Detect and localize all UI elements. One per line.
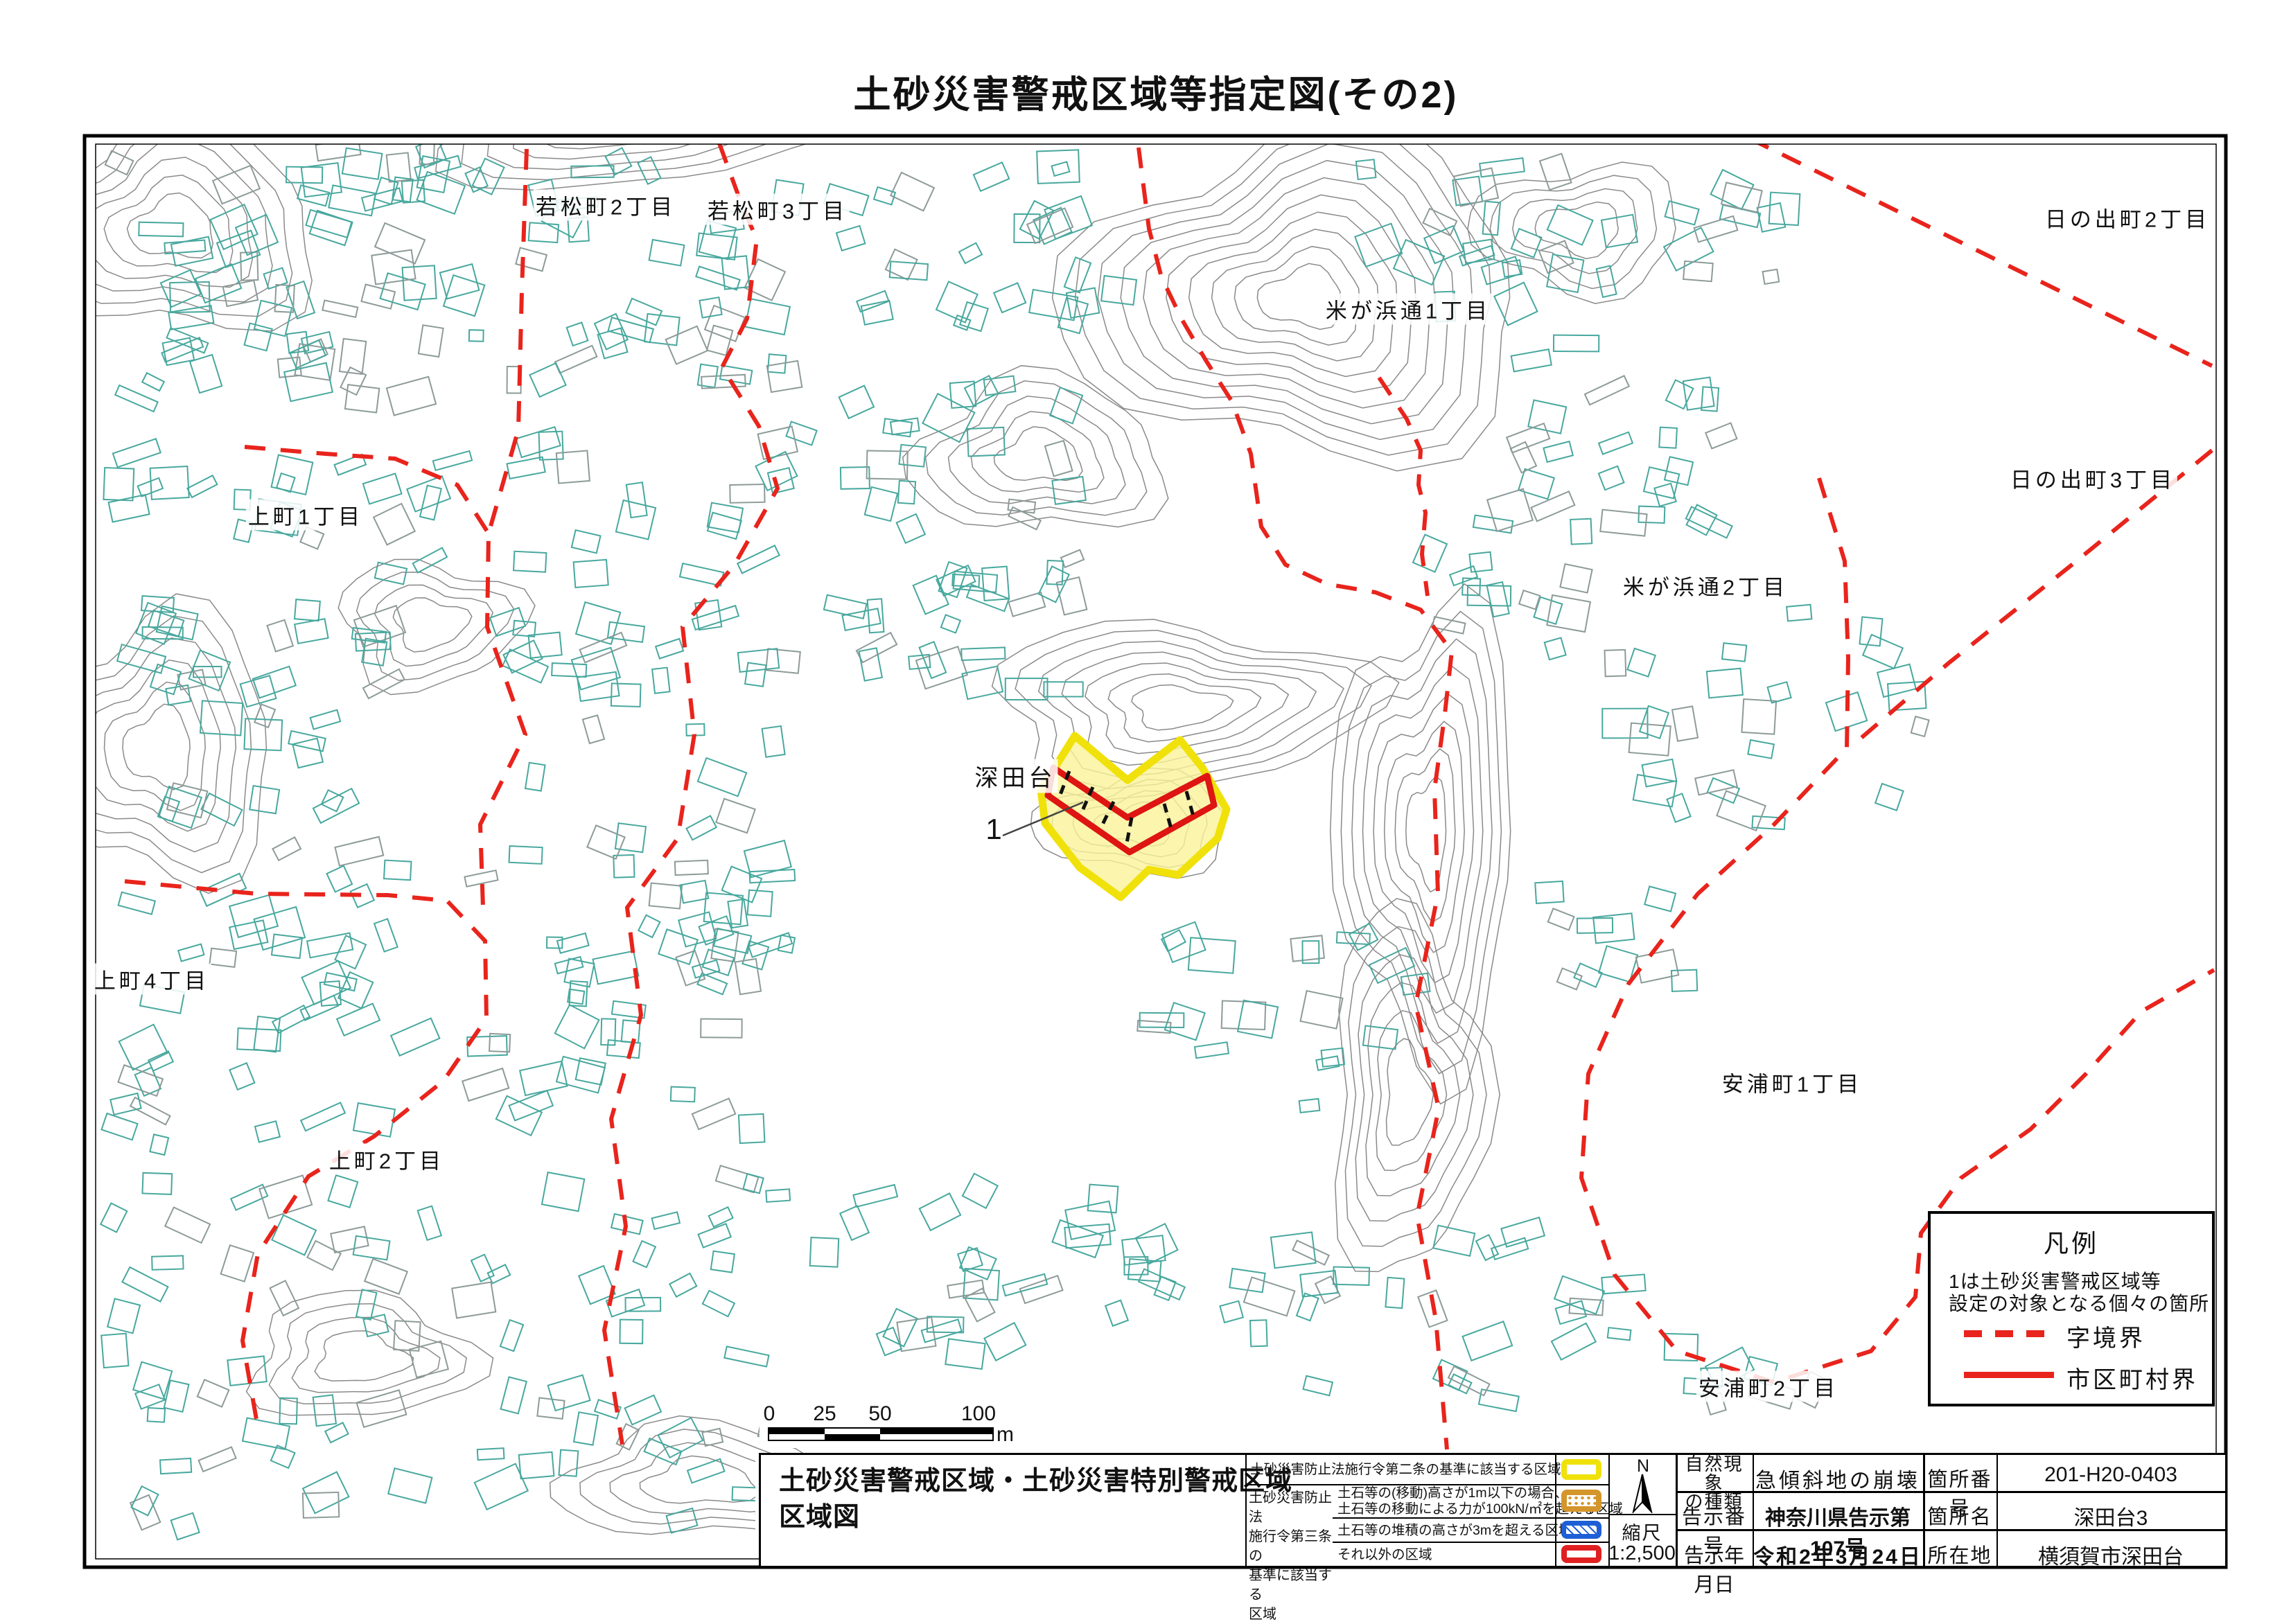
municipal-boundary-label: 市区町村界 bbox=[2066, 1361, 2198, 1395]
scale-unit-label: m bbox=[997, 1423, 1014, 1447]
scale-bar: 0 25 50 100 m bbox=[760, 1402, 1017, 1448]
law-group-line2: 施行令第三条の bbox=[1249, 1527, 1332, 1566]
hazard-zone bbox=[1003, 736, 1227, 897]
notice-date-label: 告示年月日 bbox=[1676, 1539, 1753, 1598]
law-row3-text: 土石等の堆積の高さが3mを超える区域 bbox=[1337, 1523, 1556, 1539]
swatch-special-orange-dots bbox=[1561, 1490, 1601, 1512]
swatch-warning-yellow bbox=[1561, 1459, 1601, 1480]
law-row2-line1: 土石等の(移動)高さが1m以下の場合、 bbox=[1337, 1485, 1556, 1501]
site-name-label: 箇所名 bbox=[1923, 1501, 1996, 1530]
scale-tick-100: 100 bbox=[961, 1402, 996, 1426]
aza-boundary-label: 字境界 bbox=[2066, 1319, 2145, 1353]
site-no-value: 201-H20-0403 bbox=[1996, 1463, 2225, 1487]
doc-title-line1: 土砂災害警戒区域・土砂災害特別警戒区域 bbox=[779, 1459, 1292, 1497]
building-outlines bbox=[100, 138, 1929, 1539]
doc-title-line2: 区域図 bbox=[779, 1495, 860, 1533]
aza-boundary-dashed-sample bbox=[1964, 1330, 2054, 1337]
scale-label: 縮尺 bbox=[1608, 1518, 1676, 1545]
nature-type-value: 急傾斜地の崩壊 bbox=[1753, 1463, 1923, 1494]
law-row2-text: 土石等の(移動)高さが1m以下の場合、 土石等の移動による力が100kN/㎡を超… bbox=[1337, 1485, 1556, 1517]
scale-value: 1:2,500 bbox=[1608, 1542, 1676, 1565]
law-group-line3: 基準に該当する bbox=[1249, 1566, 1332, 1605]
location-label: 所在地 bbox=[1923, 1539, 1996, 1569]
legend-title: 凡例 bbox=[1931, 1224, 2212, 1260]
title-block-table: 土砂災害警戒区域・土砂災害特別警戒区域 区域図 土砂災害防止法施行令第二条の基準… bbox=[759, 1453, 2227, 1568]
notice-date-value: 令和2年3月24日 bbox=[1753, 1539, 1923, 1570]
law-group-label: 土砂災害防止法 施行令第三条の 基準に該当する 区域 bbox=[1249, 1488, 1332, 1624]
legend-note-line2: 設定の対象となる個々の箇所 bbox=[1949, 1289, 2209, 1316]
swatch-special-blue-hatch bbox=[1561, 1521, 1601, 1539]
north-arrow-icon bbox=[1627, 1473, 1658, 1513]
nature-type-label-line1: 自然現象 bbox=[1676, 1455, 1753, 1492]
location-value: 横須賀市深田台 bbox=[1996, 1539, 2225, 1570]
law-row4-text: それ以外の区域 bbox=[1337, 1547, 1556, 1563]
site-name-value: 深田台3 bbox=[1996, 1501, 2225, 1531]
law-group-line4: 区域 bbox=[1249, 1605, 1332, 1624]
legend-box: 凡例 1は土砂災害警戒区域等 設定の対象となる個々の箇所 字境界 市区町村界 bbox=[1928, 1211, 2215, 1406]
law-row2-line2: 土石等の移動による力が100kN/㎡を超える区域 bbox=[1337, 1501, 1556, 1517]
scale-tick-50: 50 bbox=[868, 1402, 891, 1426]
law-group-line1: 土砂災害防止法 bbox=[1249, 1488, 1332, 1527]
law-row1-text: 土砂災害防止法施行令第二条の基準に該当する区域 bbox=[1250, 1462, 1555, 1478]
scale-bar-strip bbox=[768, 1427, 994, 1441]
scale-tick-25: 25 bbox=[813, 1402, 836, 1426]
municipal-boundary-solid-sample bbox=[1964, 1372, 2054, 1378]
scale-tick-0: 0 bbox=[764, 1402, 775, 1426]
contour-lines bbox=[12, 42, 1676, 1534]
swatch-other-red bbox=[1561, 1545, 1601, 1563]
